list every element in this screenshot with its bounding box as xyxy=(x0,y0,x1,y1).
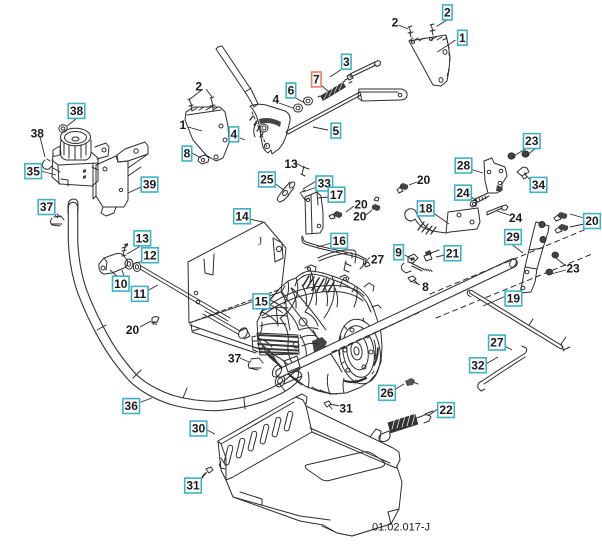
svg-text:36: 36 xyxy=(125,399,139,413)
svg-text:28: 28 xyxy=(457,159,471,173)
svg-text:27: 27 xyxy=(490,336,504,350)
svg-text:8: 8 xyxy=(422,280,429,294)
svg-text:22: 22 xyxy=(439,403,453,417)
svg-text:37: 37 xyxy=(228,352,242,366)
svg-text:34: 34 xyxy=(532,178,546,192)
svg-text:17: 17 xyxy=(330,188,344,202)
svg-text:21: 21 xyxy=(446,246,460,260)
svg-text:26: 26 xyxy=(380,386,394,400)
svg-text:20: 20 xyxy=(585,214,599,228)
svg-text:14: 14 xyxy=(235,209,249,223)
svg-text:20: 20 xyxy=(417,173,431,187)
svg-text:32: 32 xyxy=(471,358,485,372)
svg-text:23: 23 xyxy=(525,134,539,148)
svg-text:1: 1 xyxy=(180,118,187,132)
svg-text:4: 4 xyxy=(272,93,279,107)
svg-text:27: 27 xyxy=(371,252,385,266)
svg-text:24: 24 xyxy=(456,186,470,200)
svg-text:2: 2 xyxy=(195,79,202,93)
svg-text:2: 2 xyxy=(392,16,399,30)
svg-text:9: 9 xyxy=(395,245,402,259)
svg-text:30: 30 xyxy=(192,422,206,436)
svg-text:7: 7 xyxy=(313,73,320,87)
svg-text:8: 8 xyxy=(184,147,191,161)
svg-text:19: 19 xyxy=(507,292,521,306)
svg-text:J: J xyxy=(256,235,264,248)
svg-text:20: 20 xyxy=(353,210,367,224)
svg-text:13: 13 xyxy=(284,157,298,171)
svg-text:11: 11 xyxy=(133,287,146,301)
svg-text:2: 2 xyxy=(444,6,451,20)
svg-text:35: 35 xyxy=(27,164,41,178)
svg-text:6: 6 xyxy=(288,84,295,98)
svg-text:25: 25 xyxy=(260,173,274,187)
svg-text:23: 23 xyxy=(566,261,580,275)
svg-text:37: 37 xyxy=(40,200,54,214)
svg-text:20: 20 xyxy=(126,323,140,337)
svg-text:12: 12 xyxy=(143,248,157,262)
svg-text:39: 39 xyxy=(143,178,157,192)
svg-text:31: 31 xyxy=(339,401,353,415)
svg-text:3: 3 xyxy=(343,55,350,69)
svg-text:4: 4 xyxy=(230,128,237,142)
svg-text:01.02.017-J: 01.02.017-J xyxy=(372,522,430,534)
svg-text:18: 18 xyxy=(419,202,433,216)
svg-text:1: 1 xyxy=(459,31,466,45)
svg-text:13: 13 xyxy=(136,232,150,246)
svg-text:10: 10 xyxy=(114,277,128,291)
svg-text:24: 24 xyxy=(509,211,523,225)
svg-text:5: 5 xyxy=(333,124,340,138)
svg-text:38: 38 xyxy=(31,126,45,140)
svg-text:31: 31 xyxy=(186,479,200,493)
svg-text:38: 38 xyxy=(70,104,84,118)
svg-text:29: 29 xyxy=(506,230,520,244)
svg-text:15: 15 xyxy=(255,295,269,309)
svg-text:16: 16 xyxy=(333,234,347,248)
